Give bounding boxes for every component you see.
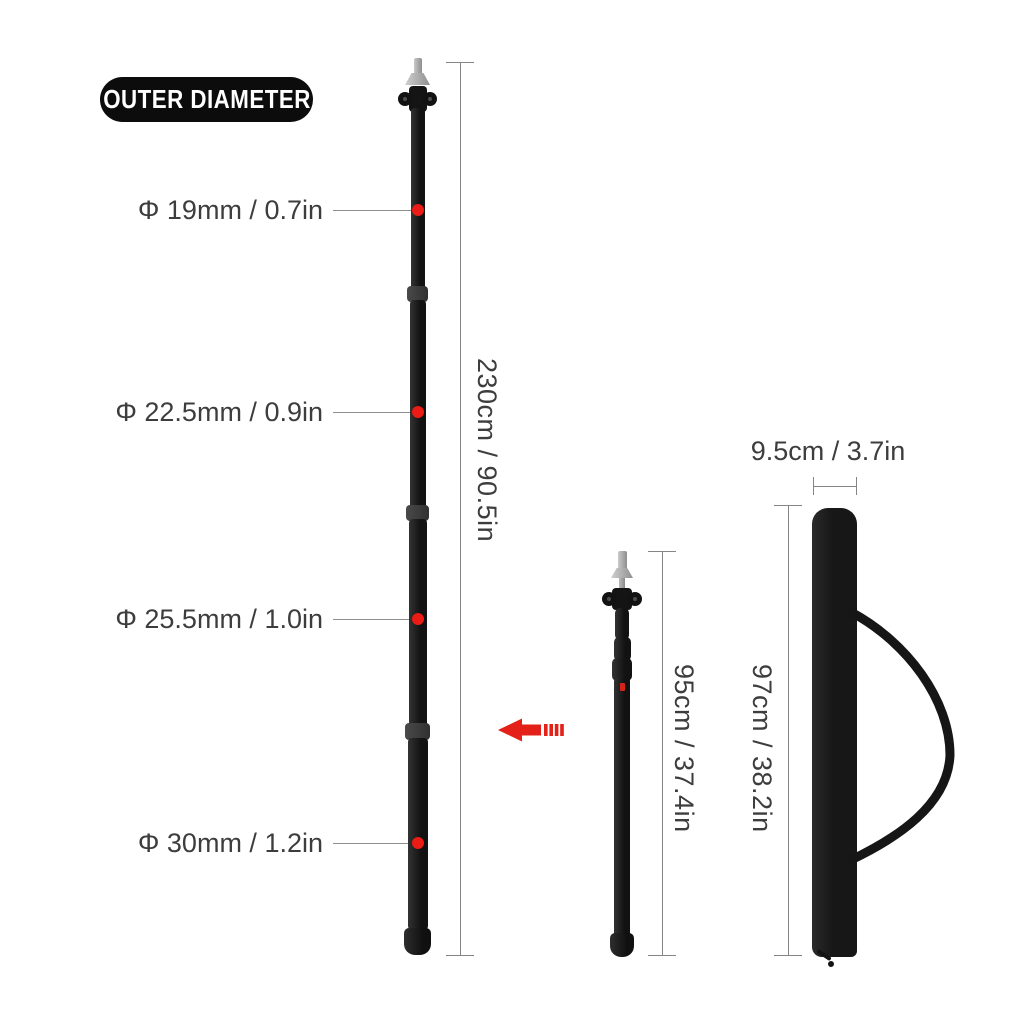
diameter-label-25-5mm: Φ 25.5mm / 1.0in [95, 604, 323, 635]
diameter-marker-dot-1 [412, 204, 424, 216]
outer-diameter-badge: OUTER DIAMETER [100, 77, 313, 122]
diameter-label-row-2: Φ 22.5mm / 0.9in [95, 396, 417, 428]
diameter-marker-dot-2 [412, 406, 424, 418]
diameter-label-19mm: Φ 19mm / 0.7in [95, 195, 323, 226]
diameter-marker-dot-4 [412, 837, 424, 849]
pole-cap-ear-left [398, 92, 412, 106]
dim-line-bag [788, 505, 789, 955]
bag-length-text: 97cm / 38.2in [746, 664, 777, 833]
pole-tip-stud [414, 58, 422, 75]
dim-tbar-bottom-extended [446, 955, 474, 956]
extended-length-text: 230cm / 90.5in [471, 358, 502, 542]
collapsed-length-text: 95cm / 37.4in [668, 664, 699, 833]
red-logo-mark [620, 683, 625, 691]
pole-tip-stud [618, 551, 627, 569]
diameter-label-22-5mm: Φ 22.5mm / 0.9in [95, 397, 323, 428]
pole-segment-4 [408, 738, 428, 930]
dim-tbar-bottom-collapsed [648, 955, 676, 956]
pole-foot [404, 928, 431, 955]
collapsed-pole [607, 551, 637, 961]
extended-pole [404, 58, 431, 958]
collapsed-segment-1 [615, 608, 629, 640]
dim-tbar-bottom-bag [774, 955, 802, 956]
pole-tip-flange [611, 568, 633, 578]
dim-line-extended [460, 62, 461, 955]
collapse-arrow-icon [498, 716, 564, 744]
bag-strap [845, 598, 960, 870]
bag-zipper-pull-tip [828, 961, 834, 967]
pole-cap-ear-right [628, 592, 642, 606]
pole-segment-1 [411, 108, 425, 294]
pole-segment-3 [409, 519, 427, 732]
diameter-marker-dot-3 [412, 613, 424, 625]
bag-width-text: 9.5cm / 3.7in [748, 436, 908, 467]
bag-width-tick-right [856, 477, 857, 495]
dim-line-collapsed [662, 551, 663, 955]
pole-cap-ear-right [423, 92, 437, 106]
product-dimension-diagram: OUTER DIAMETER Φ 19mm / 0.7in Φ 22.5mm /… [0, 0, 1024, 1024]
bag-width-bracket [813, 486, 857, 487]
outer-diameter-badge-label: OUTER DIAMETER [103, 84, 311, 114]
diameter-label-row-4: Φ 30mm / 1.2in [95, 827, 417, 859]
collapsed-lower-tube [614, 678, 630, 936]
diameter-label-30mm: Φ 30mm / 1.2in [95, 828, 323, 859]
pole-foot [610, 933, 634, 957]
diameter-label-row-1: Φ 19mm / 0.7in [95, 194, 417, 226]
pole-tip-flange [405, 73, 430, 85]
pole-cap-ear-left [602, 592, 616, 606]
diameter-label-row-3: Φ 25.5mm / 1.0in [95, 603, 417, 635]
